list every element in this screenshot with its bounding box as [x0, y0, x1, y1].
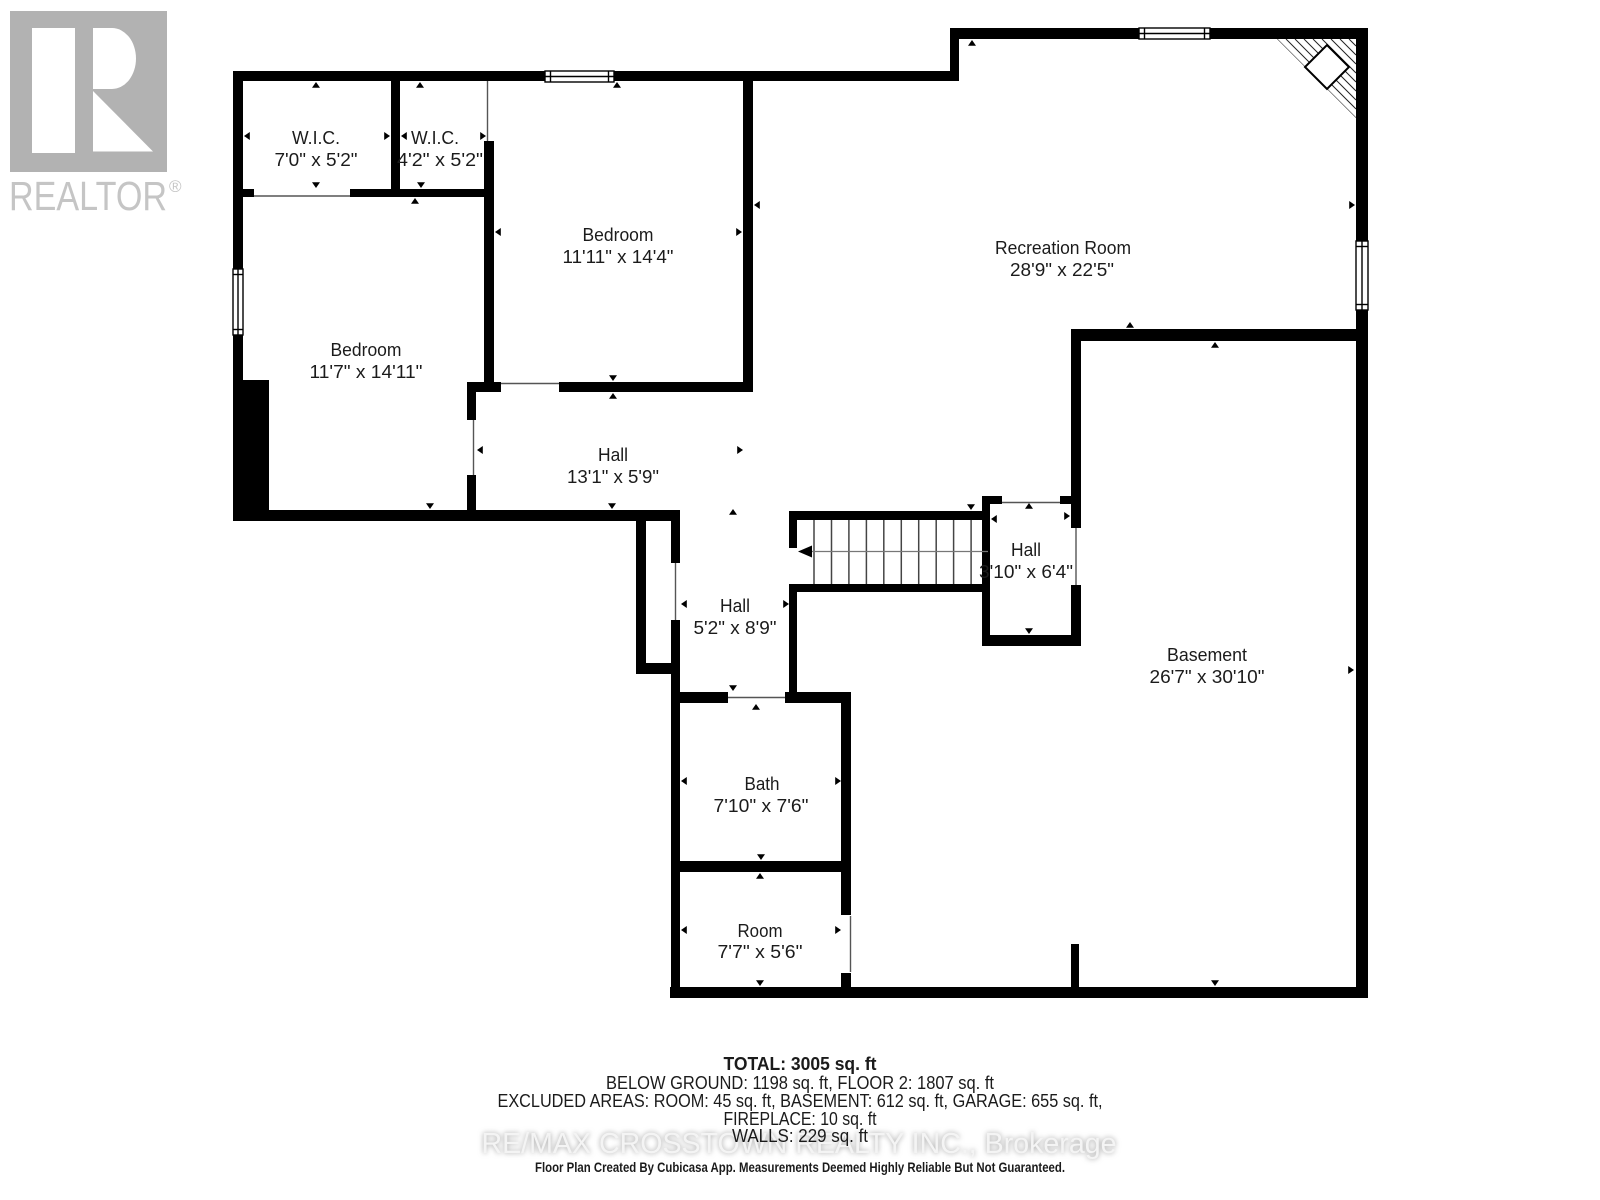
svg-text:®: ®: [169, 177, 182, 196]
svg-text:7'10" x 7'6": 7'10" x 7'6": [714, 796, 809, 816]
svg-text:REALTOR: REALTOR: [9, 173, 167, 219]
svg-text:26'7" x 30'10": 26'7" x 30'10": [1150, 667, 1265, 687]
svg-text:TOTAL: 3005 sq. ft: TOTAL: 3005 sq. ft: [724, 1054, 877, 1074]
svg-text:4'2" x 5'2": 4'2" x 5'2": [397, 150, 483, 170]
svg-text:Floor Plan Created By Cubicasa: Floor Plan Created By Cubicasa App. Meas…: [535, 1159, 1065, 1175]
svg-text:W.I.C.: W.I.C.: [411, 128, 459, 148]
svg-text:WALLS: 229 sq. ft: WALLS: 229 sq. ft: [732, 1126, 868, 1146]
svg-text:Bath: Bath: [745, 774, 780, 794]
svg-text:28'9" x 22'5": 28'9" x 22'5": [1010, 260, 1114, 280]
svg-text:Hall: Hall: [598, 445, 628, 465]
svg-text:13'1" x 5'9": 13'1" x 5'9": [567, 467, 659, 487]
svg-text:Bedroom: Bedroom: [331, 340, 402, 360]
svg-text:Room: Room: [738, 921, 783, 941]
svg-text:7'0" x 5'2": 7'0" x 5'2": [275, 150, 358, 170]
svg-text:11'7" x 14'11": 11'7" x 14'11": [310, 362, 423, 382]
svg-text:EXCLUDED AREAS: ROOM: 45 sq. f: EXCLUDED AREAS: ROOM: 45 sq. ft, BASEMEN…: [498, 1091, 1103, 1111]
svg-text:11'11" x 14'4": 11'11" x 14'4": [563, 247, 674, 267]
svg-text:Hall: Hall: [1011, 540, 1041, 560]
svg-text:7'7" x 5'6": 7'7" x 5'6": [718, 942, 803, 962]
svg-text:3'10" x 6'4": 3'10" x 6'4": [979, 562, 1073, 582]
svg-text:Basement: Basement: [1167, 645, 1247, 665]
svg-text:Bedroom: Bedroom: [583, 225, 654, 245]
svg-text:BELOW GROUND: 1198 sq. ft, FLO: BELOW GROUND: 1198 sq. ft, FLOOR 2: 1807…: [606, 1073, 994, 1093]
svg-text:Recreation Room: Recreation Room: [995, 238, 1131, 258]
svg-text:5'2" x 8'9": 5'2" x 8'9": [694, 618, 777, 638]
svg-text:Hall: Hall: [720, 596, 750, 616]
svg-text:W.I.C.: W.I.C.: [292, 128, 340, 148]
